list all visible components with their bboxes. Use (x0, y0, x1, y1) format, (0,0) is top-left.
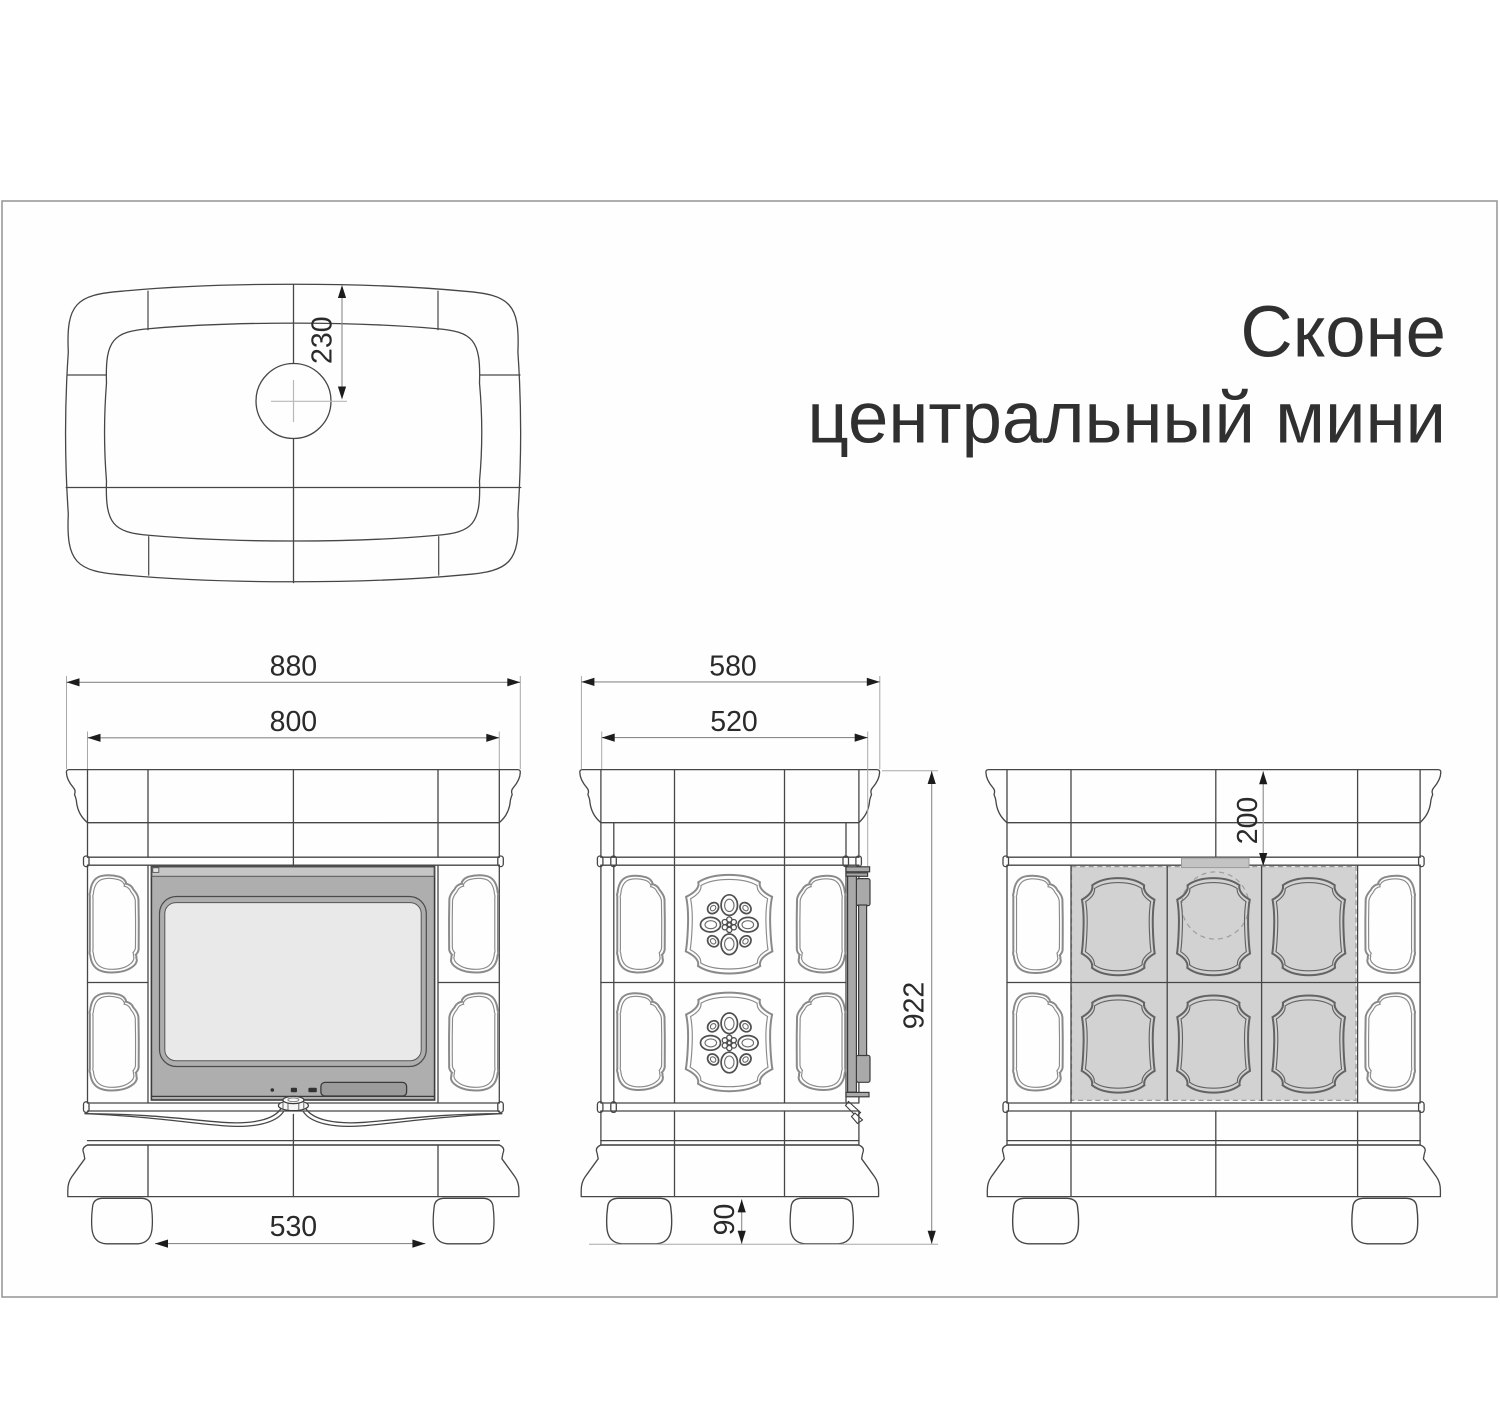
svg-text:530: 530 (270, 1211, 318, 1243)
svg-text:580: 580 (709, 650, 757, 682)
svg-text:центральный мини: центральный мини (807, 378, 1446, 459)
svg-text:200: 200 (1232, 797, 1264, 845)
svg-text:800: 800 (270, 706, 318, 738)
svg-text:230: 230 (307, 316, 339, 364)
svg-text:520: 520 (710, 706, 758, 738)
svg-text:880: 880 (270, 650, 318, 682)
svg-text:922: 922 (899, 982, 931, 1030)
svg-text:90: 90 (709, 1204, 741, 1236)
svg-text:Сконе: Сконе (1240, 292, 1446, 373)
